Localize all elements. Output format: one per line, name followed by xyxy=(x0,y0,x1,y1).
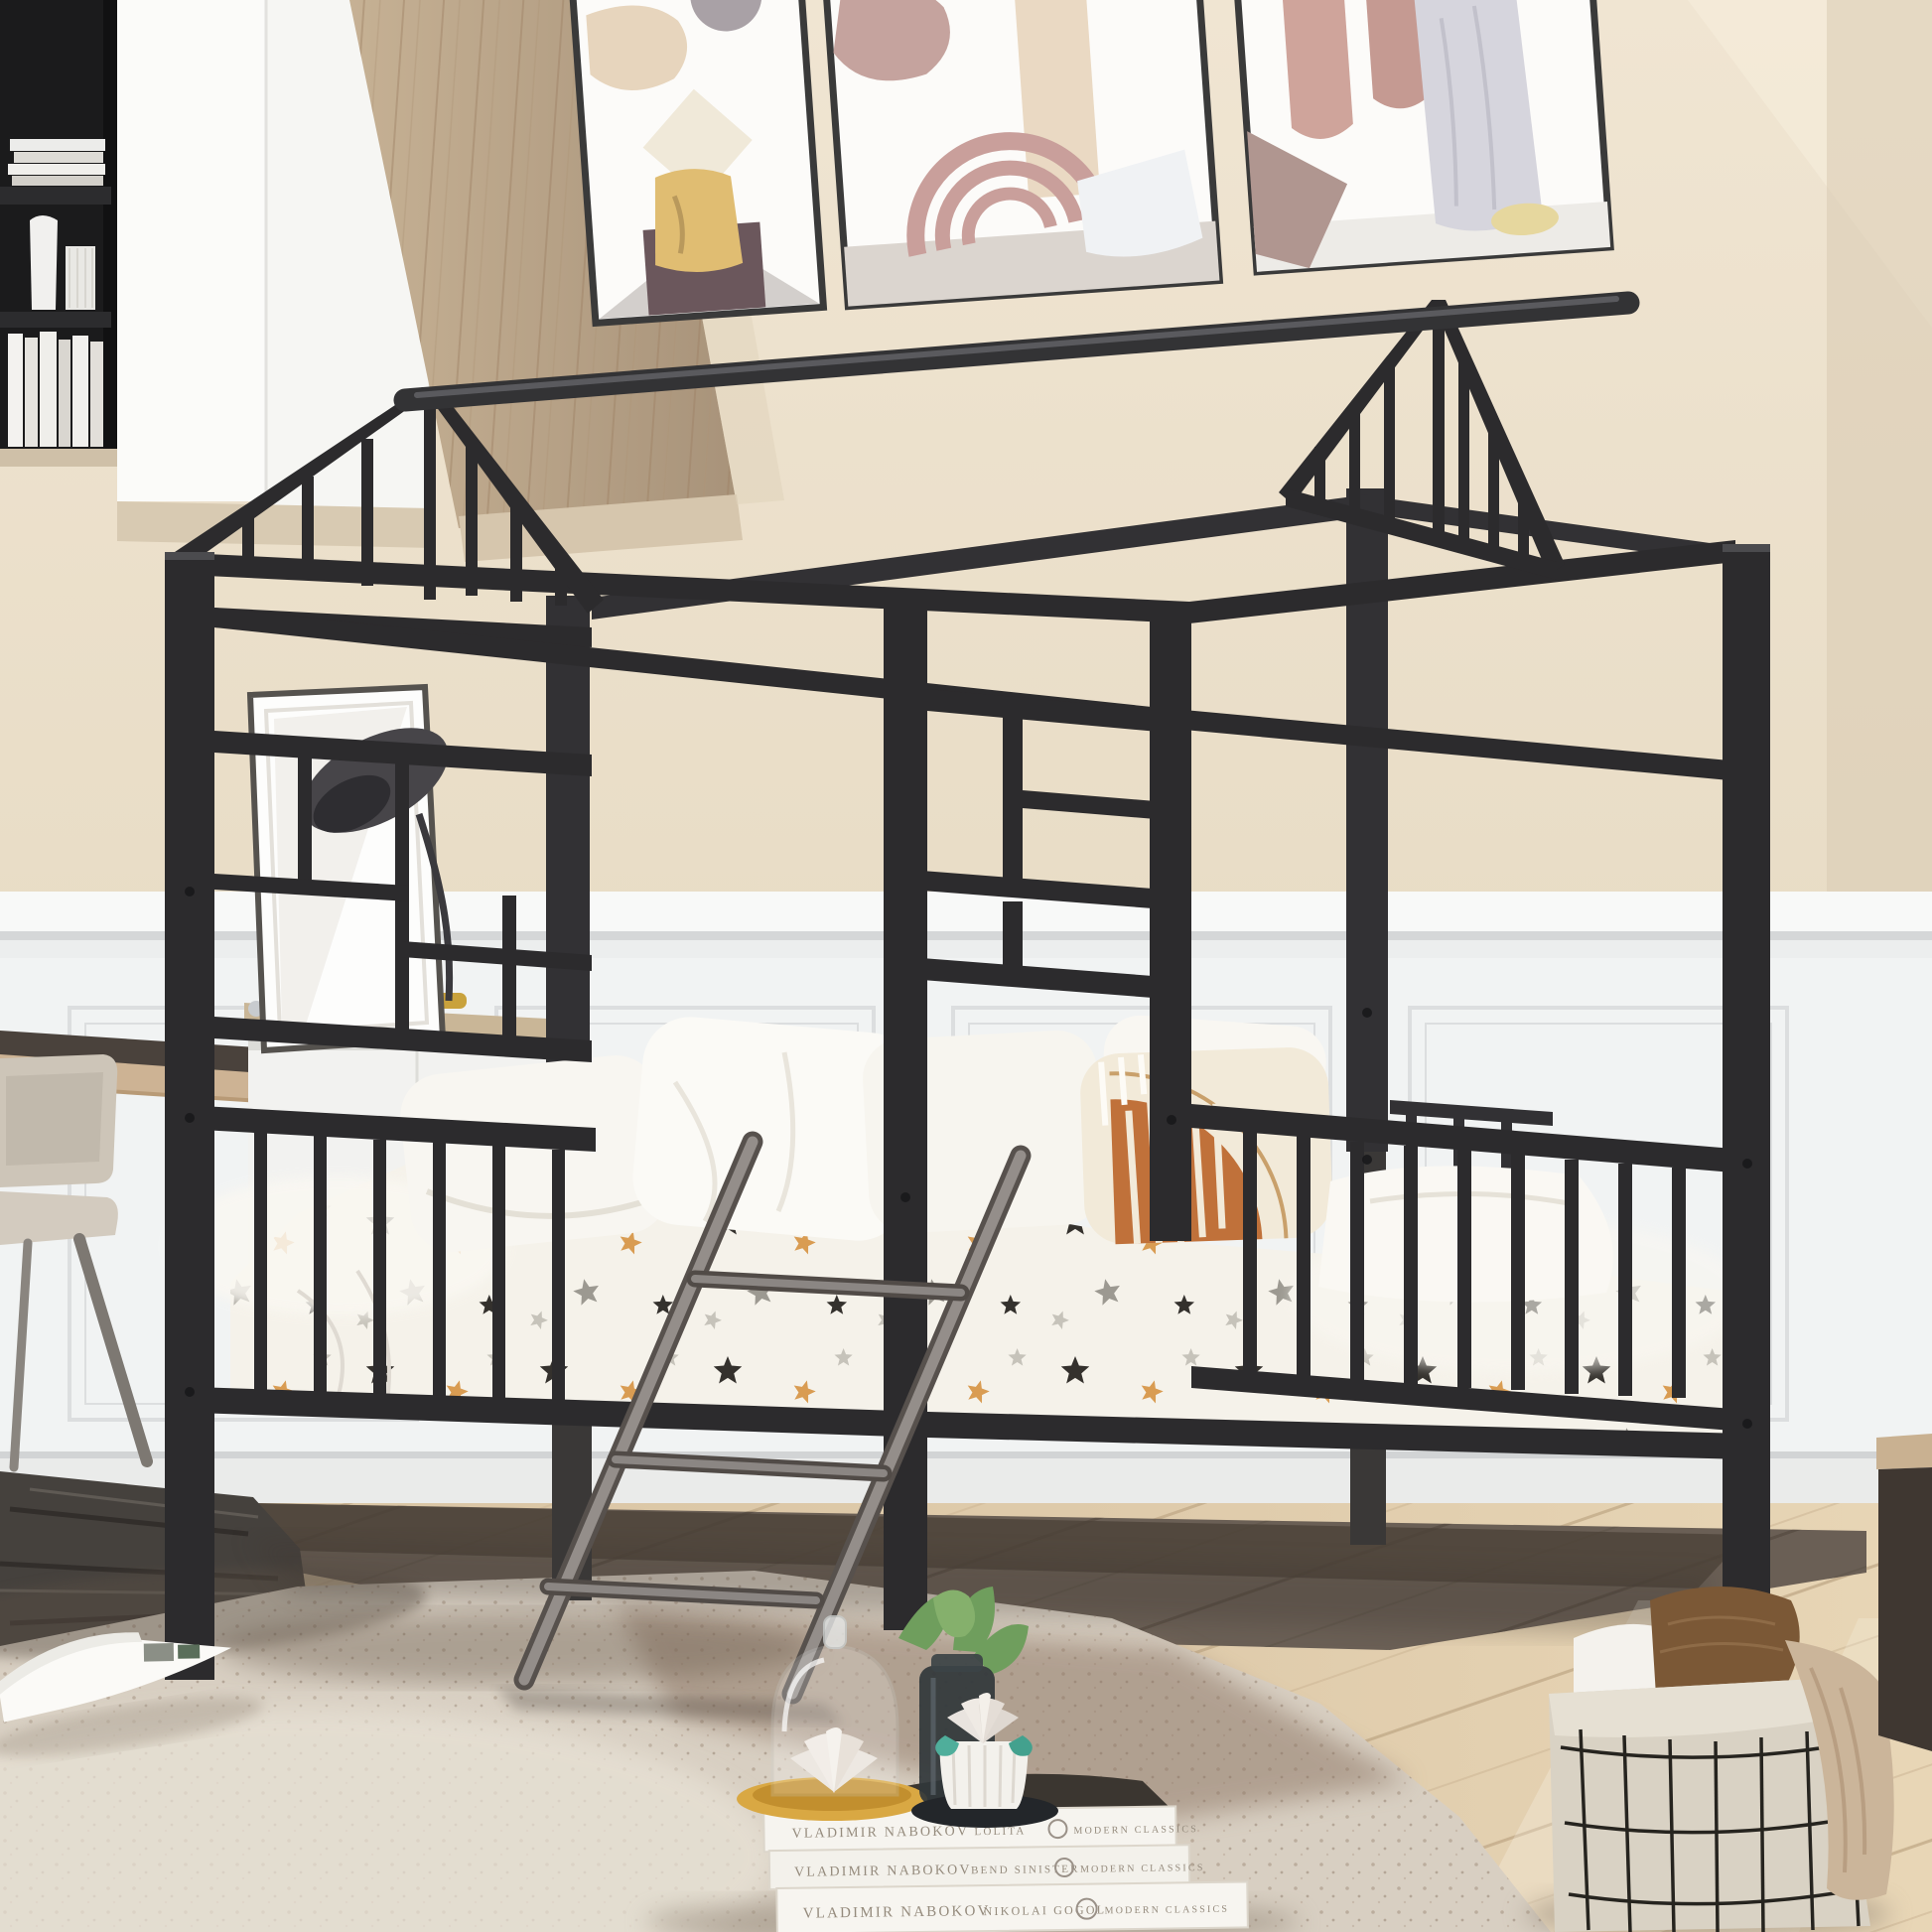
scene-canvas: VLADIMIR NABOKOV LOLITA MODERN CLASSICS … xyxy=(0,0,1932,1932)
right-cabinet xyxy=(1876,1434,1932,1751)
gable-king-post xyxy=(424,393,436,600)
art-frame-1 xyxy=(571,0,823,323)
art-frame-2 xyxy=(825,0,1220,307)
book-2-author: VLADIMIR NABOKOV xyxy=(794,1863,972,1879)
front-right-post xyxy=(1723,544,1770,1646)
cabinet-bottom-strip xyxy=(117,501,433,548)
shelf-base-strip xyxy=(0,449,119,467)
book-3-publisher: MODERN CLASSICS xyxy=(1105,1904,1230,1917)
book-1-author: VLADIMIR NABOKOV xyxy=(791,1824,969,1841)
right-cabinet-top xyxy=(1876,1434,1932,1469)
bookshelf xyxy=(0,0,119,467)
right-cabinet-body xyxy=(1878,1467,1932,1751)
book-3-title: NIKOLAI GOGOL xyxy=(984,1902,1107,1918)
art-frame-3 xyxy=(1234,0,1610,272)
book-2-title: BEND SINISTER xyxy=(971,1863,1080,1877)
bedroom-scene: VLADIMIR NABOKOV LOLITA MODERN CLASSICS … xyxy=(0,0,1932,1932)
front-mullion-post xyxy=(1150,606,1191,1241)
gable-king-post xyxy=(1433,306,1445,544)
basket-blanket-brown xyxy=(1650,1587,1800,1696)
baseboard xyxy=(0,1451,1932,1507)
cloche-knob xyxy=(824,1616,846,1648)
book-1-publisher: MODERN CLASSICS xyxy=(1073,1824,1198,1837)
book-3-author: VLADIMIR NABOKOV xyxy=(803,1903,991,1922)
shelf-books-top xyxy=(8,139,105,186)
book-2-publisher: MODERN CLASSICS xyxy=(1080,1863,1205,1875)
accent-pillow xyxy=(1079,1046,1334,1246)
